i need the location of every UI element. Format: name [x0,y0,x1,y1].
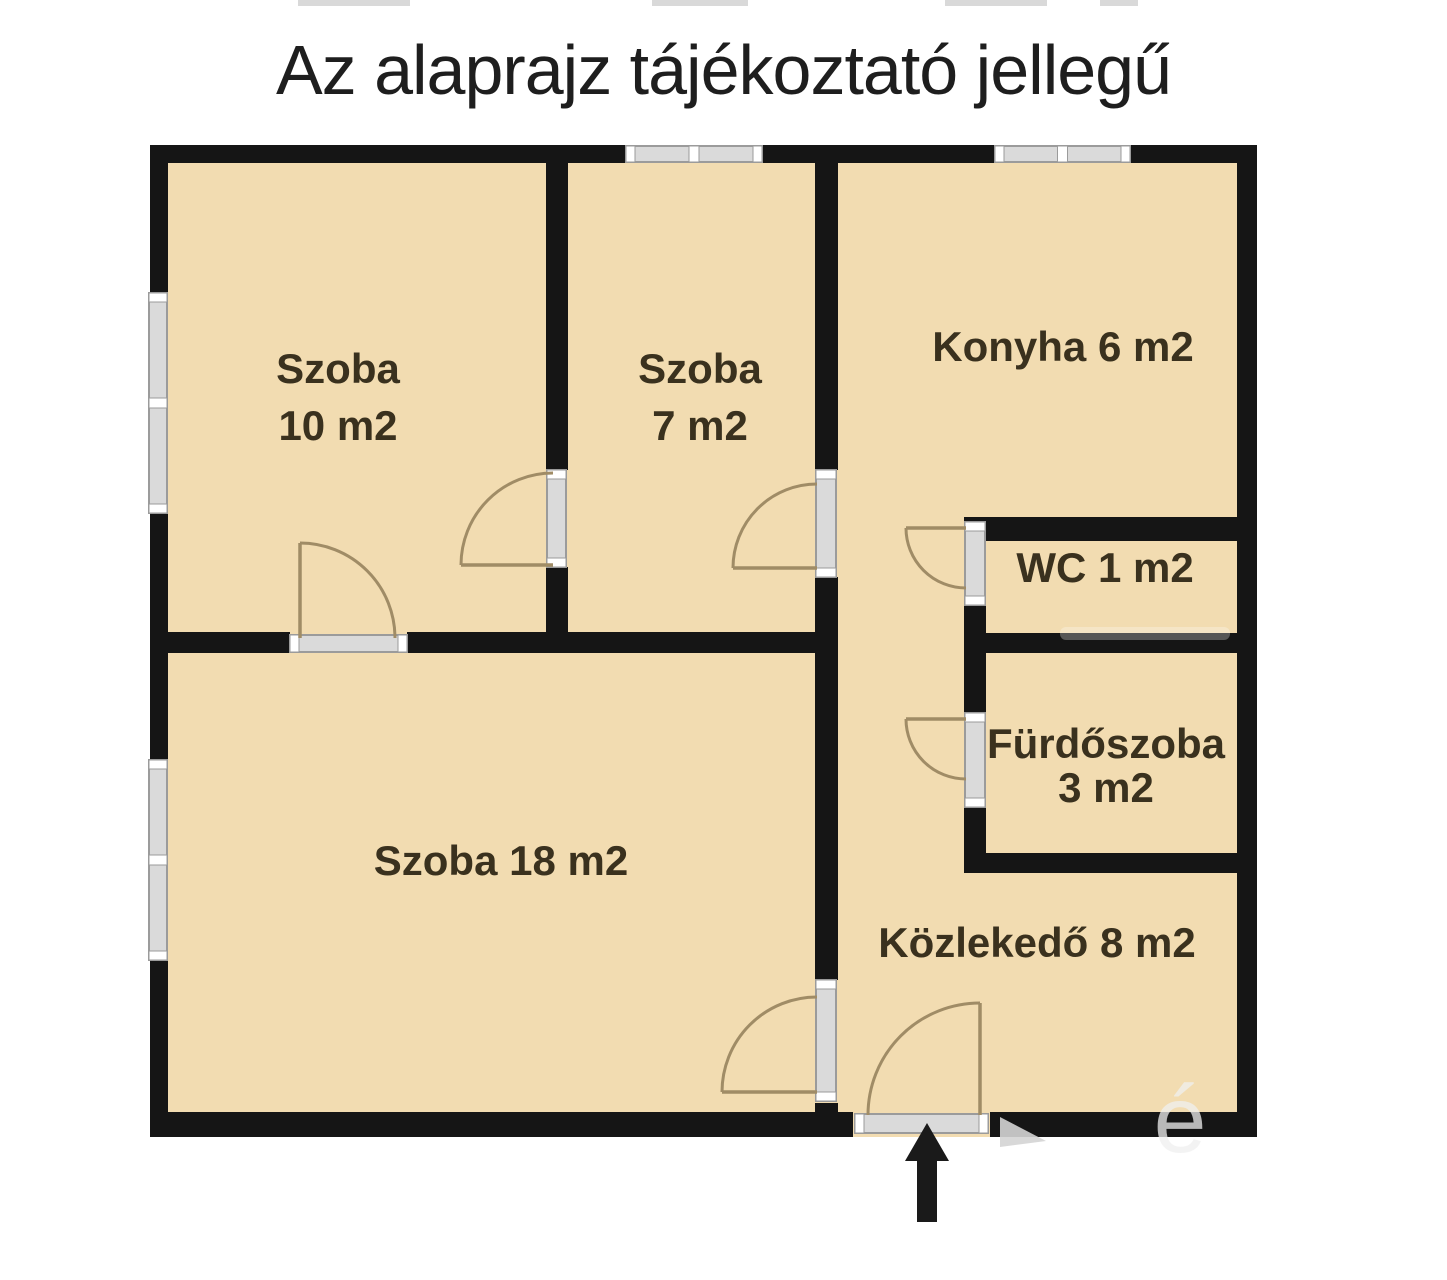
cropped-text-smudge [1100,0,1138,6]
doorframe-entrance [855,1114,988,1133]
doorframe-szoba10-cap [398,635,407,652]
cropped-text-smudge [652,0,748,6]
window-top-szoba7-cap [626,146,635,162]
wall-outer-right [1237,145,1257,1137]
doorframe-szoba10-szoba7 [547,470,566,567]
window-top-szoba7-cap [753,146,762,162]
window-top-szoba7-divider [689,146,699,162]
window-top-konyha-cap [995,146,1004,162]
window-left-szoba10-cap [149,504,167,513]
watermark-wall-smudge [1060,627,1230,640]
doorframe-szoba7-hall [816,470,836,577]
wall-furdo-left-wall [964,807,986,853]
wall-outer-bottom-left [150,1112,853,1137]
room-label-kozlekedo: Közlekedő 8 m2 [878,919,1195,966]
doorframe-szoba18-hall-cap [816,980,836,989]
doorframe-szoba18-hall-cap [816,1092,836,1101]
room-label-konyha: Konyha 6 m2 [932,323,1193,370]
window-left-szoba10-cap [149,293,167,302]
cropped-text-smudge [298,0,410,6]
doorframe-szoba10 [290,635,407,652]
doorframe-wc-cap [965,596,985,605]
wall-wc-left-wall [964,605,986,713]
doorframe-wc [965,522,985,605]
doorframe-wc-cap [965,522,985,531]
doorframe-furdoszoba-cap [965,713,985,722]
cropped-text-smudge [945,0,1047,6]
wall-furdo-bottom-wall [964,853,1237,873]
window-top-konyha-cap [1121,146,1130,162]
window-top-konyha-divider [1058,146,1068,162]
floorplan-screenshot: Az alaprajz tájékoztató jellegű Szoba10 … [0,0,1447,1280]
wall-central-wall-upper [815,163,838,470]
wall-szoba10-szoba18-wall-right [407,632,838,653]
wall-konyha-bottom-wall [964,517,1237,541]
doorframe-szoba7-hall-cap [816,568,836,577]
entrance-arrow-icon [905,1123,949,1222]
doorframe-entrance-cap [855,1114,864,1133]
doorframe-szoba7-hall-cap [816,470,836,479]
room-label-wc: WC 1 m2 [1016,544,1193,591]
window-left-szoba18-divider [149,855,167,865]
doorframe-furdoszoba-cap [965,798,985,807]
doorframe-szoba18-hall [816,980,836,1101]
room-label-szoba18: Szoba 18 m2 [374,837,628,884]
window-left-szoba18-cap [149,951,167,960]
doorframe-furdoszoba [965,713,985,807]
watermark-letter: é [1154,1067,1207,1173]
doorframe-entrance-cap [979,1114,988,1133]
doorframe-szoba10-cap [290,635,299,652]
window-left-szoba10-divider [149,398,167,408]
wall-szoba10-szoba18-wall-left [168,632,290,653]
window-left-szoba18-cap [149,760,167,769]
wall-divider-szoba10-szoba7-upper [546,163,568,470]
wall-central-wall-stub [815,1103,838,1112]
floorplan-canvas: Szoba10 m2Szoba7 m2Konyha 6 m2WC 1 m2Für… [0,0,1447,1280]
